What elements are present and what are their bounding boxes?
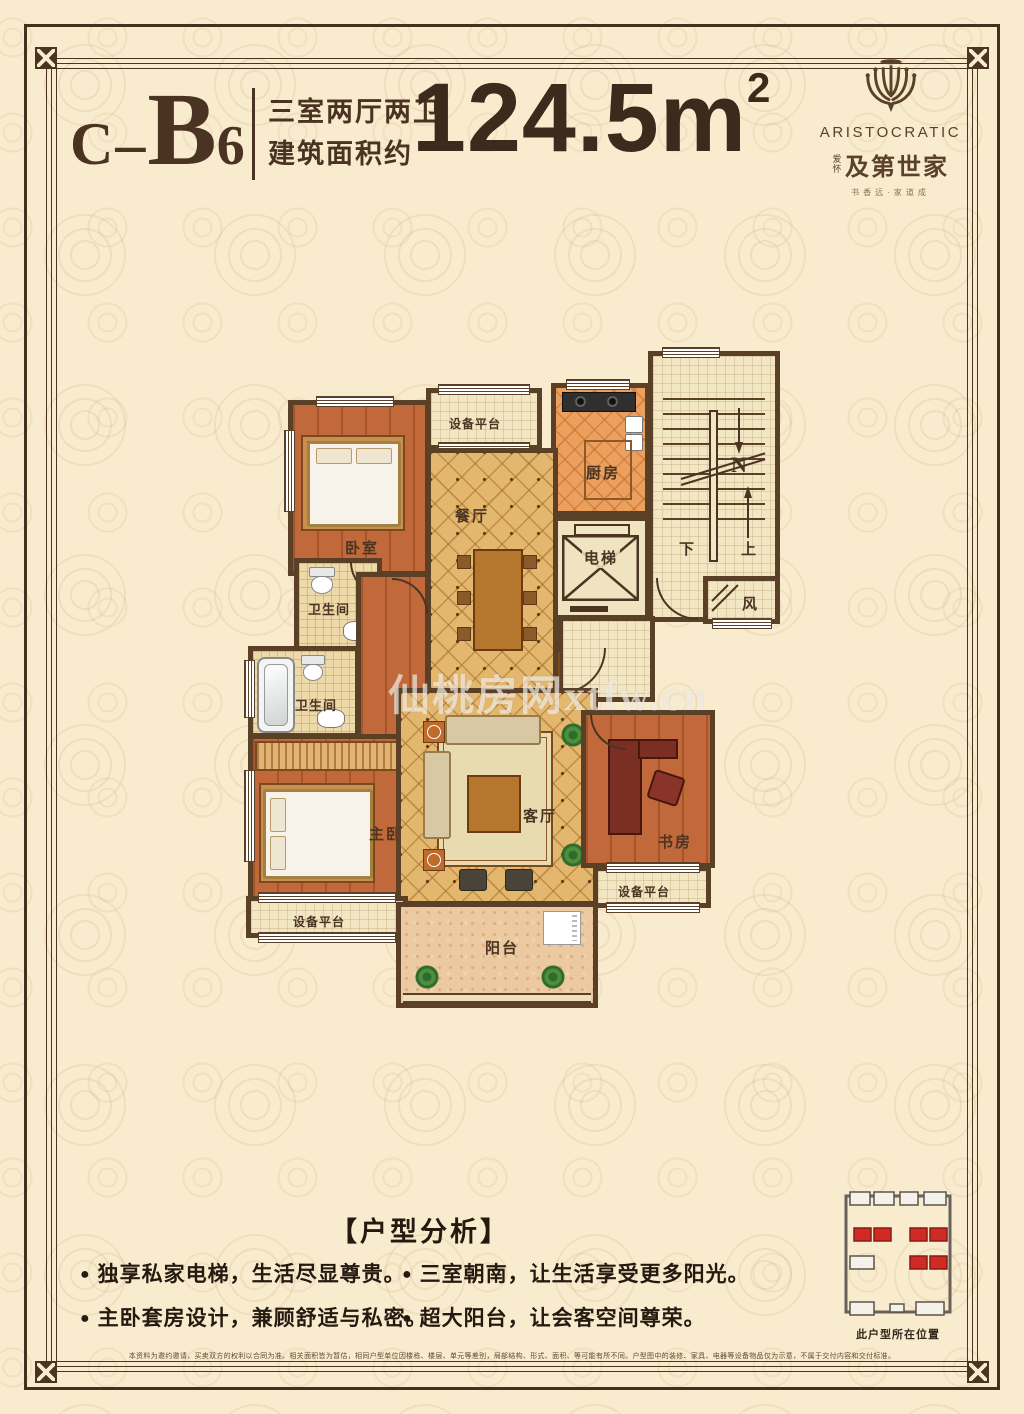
desk-return [638,739,678,759]
wind-shaft-label: 风 [742,593,759,614]
equipment-platform-top: 设备平台 [426,388,542,450]
balcony-plant [541,965,565,989]
elevator-label: 电梯 [582,547,620,568]
brand-name-cn: 及第世家 [845,147,949,182]
dining-chair [523,591,537,605]
unit-code-dash: – [115,110,145,179]
dining-chair [457,591,471,605]
wind-shaft-window [712,618,772,629]
bedroom-side-window [284,430,295,512]
frame-corner-ornament [967,1361,989,1383]
bathtub [257,657,295,733]
side-table [423,849,445,871]
stairwell-window [662,347,720,358]
unit-area-superscript: 2 [747,64,771,112]
toilet [303,664,323,681]
equipment-platform-top-label: 设备平台 [449,415,501,432]
analysis-title: 【户型分析】 [0,1210,840,1249]
site-watermark: 仙桃房网xtfw.cn [388,662,708,723]
brand-name-en: ARISTOCRATIC [808,124,973,141]
dining-chair [523,555,537,569]
wind-shaft: 风 [703,576,780,624]
living-room-label: 客厅 [523,805,557,826]
bedroom-window [316,396,394,407]
dining-room: 餐厅 [426,448,558,694]
equipment-platform-left-window [258,892,396,903]
analysis-bullet: 超大阳台，让会客空间尊荣。 [402,1302,706,1332]
analysis-bullet: 主卧套房设计，兼顾舒适与私密。 [80,1302,428,1332]
bathroom-lower: 卫生间 [248,646,360,738]
analysis-bullet: 独享私家电梯，生活尽显尊贵。 [80,1258,406,1288]
study-label: 书房 [658,831,692,852]
louver-lines [710,583,740,613]
equipment-platform-top-window [438,384,530,395]
bedroom-north: 卧室 [288,400,430,576]
master-bedroom-window [244,770,255,862]
desk [608,739,642,835]
frame-corner-ornament [35,47,57,69]
bathroom-lower-label: 卫生间 [295,695,337,714]
disclaimer-text: 本资料为邀约邀请，买卖双方的权利以合同为准。相关面积皆为暂估，相同户型单位因楼栋… [68,1351,956,1361]
equipment-platform-right-window [606,902,700,913]
balcony-plant [415,965,439,989]
brand-tagline: 书香远·家道成 [808,187,973,198]
stove-burner [607,396,618,407]
brand-prefix: 爱怀 [832,155,842,175]
washing-machine [543,911,581,945]
dining-chair [457,555,471,569]
equipment-platform-left-window [258,932,396,943]
dining-chair [523,627,537,641]
stair-up-label: 上 [741,538,758,559]
side-table [423,721,445,743]
master-bedroom: 主卧 [248,734,406,906]
elevator-door [574,524,630,536]
kitchen-sink [625,416,643,433]
unit-code-prefix: C [70,110,113,179]
equipment-platform-right-window [606,862,700,873]
tulip-logo-icon [860,56,922,116]
coffee-table [467,775,521,833]
unit-code: C – B 6 [70,78,245,182]
balcony-label: 阳台 [485,937,519,958]
stove [562,392,636,412]
bed-pillow [316,448,352,464]
sofa-side [423,751,451,839]
dining-label: 餐厅 [455,505,489,526]
equipment-platform-left-label: 设备平台 [293,913,345,930]
site-location-map [832,1186,964,1322]
kitchen-label: 厨房 [586,462,620,483]
private-elevator: 电梯 [551,516,650,620]
dining-chair [457,627,471,641]
unit-code-letter: B [147,78,216,182]
stair-down-label: 下 [679,538,696,559]
bedroom-bed [307,441,401,527]
unit-area: 124.5m 2 [412,62,771,174]
unit-area-value: 124.5m [412,62,747,174]
kitchen-window [566,379,630,390]
balcony: 阳台 [396,902,598,1008]
elevator-panel [570,606,608,612]
armchair [505,869,533,891]
brand-name-cn-row: 爱怀 及第世家 [808,147,973,182]
toilet [311,576,333,594]
brand-logo: ARISTOCRATIC 爱怀 及第世家 书香远·家道成 [808,56,973,198]
frame-corner-ornament [35,1361,57,1383]
floorplan-poster: C – B 6 三室两厅两卫 建筑面积约 124.5m 2 [0,0,1024,1414]
bedroom-label: 卧室 [345,537,379,558]
armchair [459,869,487,891]
bed-pillow [270,798,286,832]
balcony-rail [403,993,591,1003]
master-bed [263,789,373,879]
compass-north-label: N [731,452,749,478]
bed-pillow [356,448,392,464]
kitchen: 厨房 [551,383,650,516]
desk-chair [646,769,686,807]
wardrobe [255,741,403,771]
elevator-shaft-cross [562,535,639,601]
site-map-caption: 此户型所在位置 [828,1326,968,1342]
analysis-bullet: 三室朝南，让生活享受更多阳光。 [402,1258,750,1288]
bathroom-window [244,660,255,718]
equipment-platform-right-label: 设备平台 [618,883,670,900]
stove-burner [575,396,586,407]
bed-pillow [270,836,286,870]
bathroom-upper-label: 卫生间 [308,599,350,618]
header-divider [252,88,255,180]
unit-code-digit: 6 [217,114,245,178]
dining-table [473,549,523,651]
